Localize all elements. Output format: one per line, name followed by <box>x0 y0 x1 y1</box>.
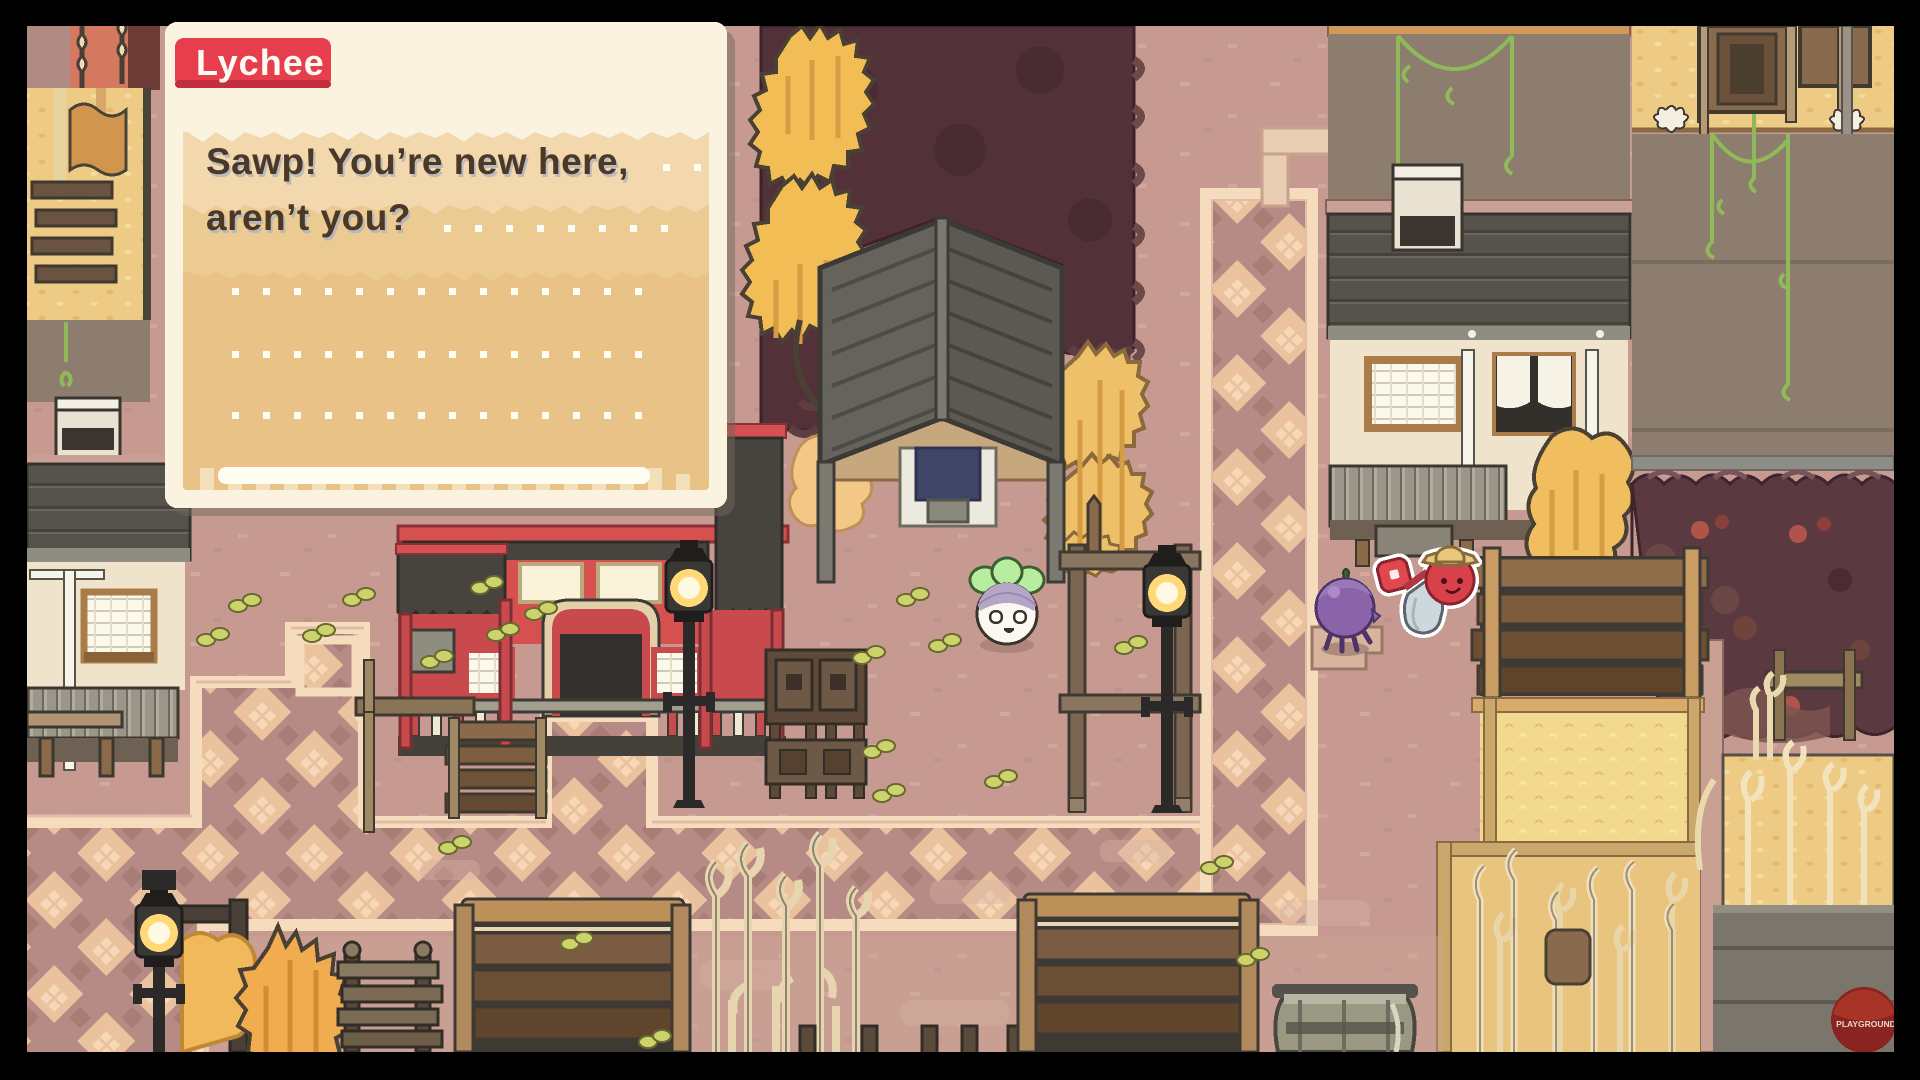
svg-text:Lychee: Lychee <box>196 42 325 83</box>
svg-text:PLAYGROUND: PLAYGROUND <box>1836 1019 1896 1029</box>
svg-text:Sawp! You’re new here,: Sawp! You’re new here, <box>206 141 629 182</box>
svg-text:aren’t you?: aren’t you? <box>206 197 411 238</box>
